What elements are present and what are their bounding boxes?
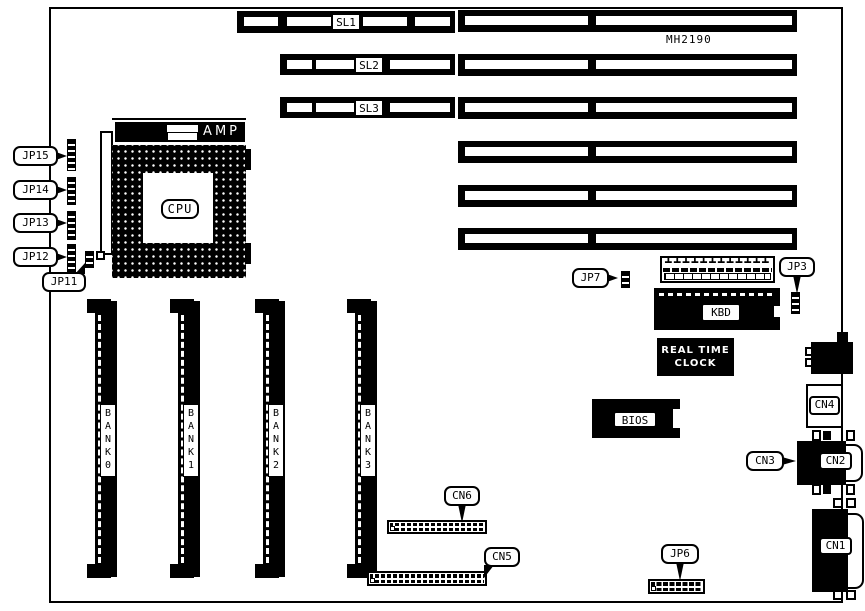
- bank3-label: B A N K 3: [360, 404, 376, 477]
- keyboard-port: [811, 342, 853, 374]
- slot-segment: [287, 103, 312, 112]
- rtc-label: REAL TIME CLOCK: [657, 338, 734, 376]
- slot-segment: [596, 16, 792, 25]
- amp-regulator: AMP: [115, 122, 245, 142]
- motherboard-diagram: MH2190 SL1 SL2 SL3: [0, 0, 865, 611]
- slot-segment: [465, 16, 588, 25]
- slot-segment: [465, 103, 588, 112]
- slot-label-sl3: SL3: [354, 99, 384, 117]
- slot-segment: [244, 17, 278, 26]
- board-model-text: MH2190: [666, 33, 712, 47]
- kbd-label: KBD: [701, 303, 741, 322]
- isa-slot-4: [458, 141, 797, 163]
- vl-slot-sl2: SL2: [280, 54, 455, 75]
- edge-tab: [823, 485, 831, 494]
- callout-cn6: CN6: [444, 486, 480, 506]
- bank2-cap-bottom: [255, 564, 279, 578]
- edge-tab: [846, 590, 856, 600]
- cn4-label: CN4: [809, 396, 840, 415]
- edge-tab: [805, 358, 813, 367]
- power-connector: ┻┻┻┻┻┻┻┻┻┻┻┻: [660, 256, 775, 283]
- bios-notch: [673, 409, 680, 428]
- pin1-marker: [370, 578, 375, 583]
- isa-slot-1: [458, 10, 797, 32]
- edge-tab: [846, 430, 855, 441]
- slot-segment: [596, 147, 792, 156]
- amp-white-block: [167, 125, 198, 132]
- bank0-label: B A N K 0: [100, 404, 116, 477]
- kbd-socket-dashes: [659, 293, 775, 296]
- jumper-jp11: [85, 251, 94, 268]
- slot-segment: [465, 147, 588, 156]
- isa-slot-2: [458, 54, 797, 76]
- slot-label-sl1: SL1: [331, 13, 361, 31]
- jumper-jp13: [67, 211, 76, 240]
- cpu-label: CPU: [161, 199, 199, 219]
- jumper-jp15: [67, 139, 76, 171]
- callout-jp12: JP12: [13, 247, 58, 267]
- slot-segment: [415, 17, 450, 26]
- pin1-marker: [651, 586, 656, 591]
- power-socket-row: [664, 273, 771, 280]
- slot-segment: [316, 103, 356, 112]
- slot-segment: [596, 191, 792, 200]
- jumper-jp14: [67, 177, 76, 205]
- cn2-label: CN2: [819, 452, 852, 470]
- edge-tab: [846, 498, 856, 508]
- kbd-notch: [774, 306, 780, 317]
- slot-segment: [287, 17, 331, 26]
- callout-jp14: JP14: [13, 180, 58, 200]
- edge-tab: [805, 347, 813, 356]
- slot-segment: [465, 60, 588, 69]
- cpu-bracket-foot: [96, 251, 105, 260]
- isa-slot-5: [458, 185, 797, 207]
- callout-jp13: JP13: [13, 213, 58, 233]
- callout-jp15: JP15: [13, 146, 58, 166]
- slot-segment: [287, 60, 312, 69]
- vl-slot-sl3: SL3: [280, 97, 455, 118]
- amp-label: AMP: [203, 123, 240, 141]
- cn6-header: [387, 520, 487, 534]
- callout-cn3: CN3: [746, 451, 784, 471]
- callout-jp3: JP3: [779, 257, 815, 277]
- power-pin-row: ┻┻┻┻┻┻┻┻┻┻┻┻: [662, 258, 773, 268]
- edge-tab: [833, 590, 843, 600]
- slot-segment: [596, 234, 792, 243]
- bank2-label: B A N K 2: [268, 404, 284, 477]
- callout-jp7: JP7: [572, 268, 609, 288]
- cn1-label: CN1: [819, 537, 852, 555]
- cpu-clip-top: [245, 149, 251, 170]
- amp-white-block: [168, 133, 197, 140]
- bank0-cap-bottom: [87, 564, 111, 578]
- isa-slot-6: [458, 228, 797, 250]
- slot-label-sl2: SL2: [354, 56, 384, 74]
- amp-top-line: [112, 118, 246, 120]
- bank1-cap-bottom: [170, 564, 194, 578]
- bank1-label: B A N K 1: [183, 404, 199, 477]
- slot-segment: [465, 191, 588, 200]
- edge-tab: [846, 484, 855, 495]
- edge-tab: [823, 431, 831, 440]
- slot-segment: [363, 17, 407, 26]
- slot-segment: [316, 60, 356, 69]
- vl-slot-sl1: SL1: [237, 11, 455, 33]
- slot-segment: [596, 103, 792, 112]
- jumper-jp3: [791, 292, 800, 314]
- callout-jp11: JP11: [42, 272, 86, 292]
- callout-jp6: JP6: [661, 544, 699, 564]
- callout-cn5: CN5: [484, 547, 520, 567]
- edge-tab: [812, 430, 821, 441]
- cpu-clip-bottom: [245, 243, 251, 264]
- bios-label: BIOS: [613, 411, 657, 428]
- rtc-chip: REAL TIME CLOCK: [657, 338, 734, 376]
- slot-segment: [390, 60, 450, 69]
- pin1-marker: [390, 526, 395, 531]
- jumper-jp7: [621, 271, 630, 288]
- cn5-header: [367, 571, 487, 586]
- isa-slot-3: [458, 97, 797, 119]
- slot-segment: [390, 103, 450, 112]
- slot-segment: [465, 234, 588, 243]
- slot-segment: [596, 60, 792, 69]
- jp6-header: [648, 579, 705, 594]
- edge-tab: [812, 484, 821, 495]
- edge-tab: [833, 498, 843, 508]
- power-connector-divider: [663, 268, 772, 272]
